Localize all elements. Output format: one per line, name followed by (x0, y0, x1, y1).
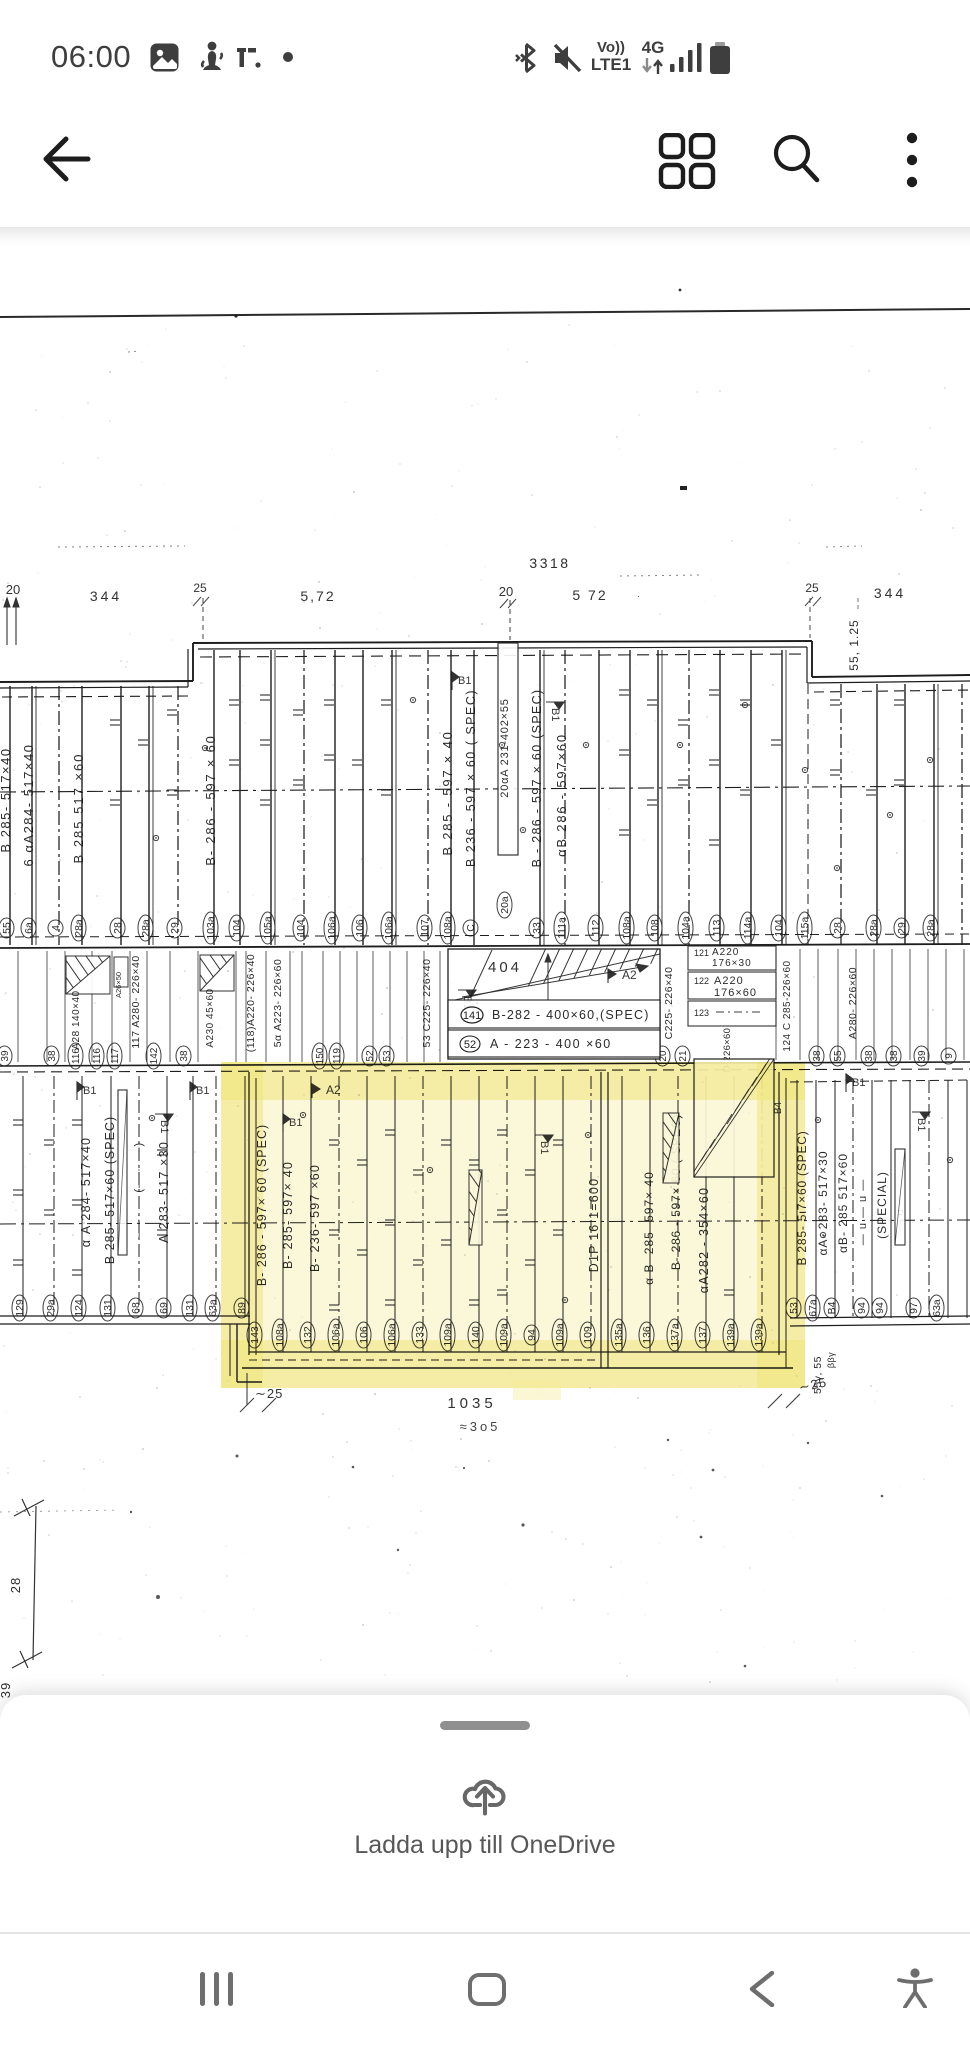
svg-text:55γ, 55: 55γ, 55 (812, 1356, 824, 1394)
svg-text:142: 142 (149, 1047, 160, 1064)
svg-text:5α A223- 226×60: 5α A223- 226×60 (272, 959, 284, 1048)
svg-text:104a: 104a (680, 916, 692, 940)
svg-text:344: 344 (90, 588, 122, 604)
svg-text:28a: 28a (73, 919, 85, 937)
svg-text:114a: 114a (742, 917, 754, 940)
svg-text:105a: 105a (262, 916, 274, 940)
svg-text:28: 28 (832, 922, 844, 934)
svg-text:39: 39 (917, 1050, 928, 1062)
svg-text:— u — u —: — u — u — (857, 1179, 869, 1245)
svg-text:38: 38 (864, 1050, 875, 1062)
svg-text:69: 69 (158, 1302, 170, 1314)
svg-text:3318: 3318 (529, 555, 570, 571)
svg-text:20: 20 (6, 582, 20, 597)
svg-text:.: . (637, 589, 640, 600)
svg-text:116: 116 (71, 1048, 82, 1064)
svg-text:52: 52 (365, 1050, 376, 1062)
svg-text:63a: 63a (207, 1299, 219, 1317)
svg-text:344: 344 (874, 585, 906, 601)
svg-text:αA- 283- 517×30: αA- 283- 517×30 (816, 1151, 830, 1256)
svg-text:A220: A220 (714, 975, 744, 987)
svg-text:29: 29 (169, 922, 181, 934)
svg-text:29a: 29a (45, 1299, 57, 1317)
svg-text:B 236 - 597 × 60 ( SPEC): B 236 - 597 × 60 ( SPEC) (464, 689, 478, 867)
svg-text:B1: B1 (915, 1118, 927, 1131)
svg-text:113: 113 (711, 919, 723, 936)
svg-text:C225- 226×40: C225- 226×40 (663, 967, 675, 1040)
svg-text:108a: 108a (442, 916, 454, 940)
svg-text:107: 107 (419, 919, 431, 937)
svg-text:111a: 111a (556, 917, 568, 939)
svg-text:53: 53 (382, 1050, 393, 1062)
svg-text:38: 38 (889, 1050, 900, 1062)
svg-text:176×60: 176×60 (714, 987, 757, 999)
svg-text:≈3ο5: ≈3ο5 (460, 1419, 501, 1434)
svg-text:176×30: 176×30 (712, 958, 752, 969)
svg-text:A2: A2 (622, 968, 637, 982)
svg-text:104: 104 (295, 919, 307, 937)
svg-text:67a: 67a (807, 1299, 819, 1317)
svg-text:122: 122 (694, 976, 709, 986)
svg-text:124 C 285-226×60: 124 C 285-226×60 (782, 960, 793, 1051)
svg-text:55: 55 (1, 922, 13, 934)
svg-text:104: 104 (773, 919, 785, 937)
svg-text:B-282 - 400×60,(SPEC): B-282 - 400×60,(SPEC) (492, 1008, 650, 1022)
svg-text:104: 104 (231, 919, 243, 937)
svg-text:63a: 63a (931, 1299, 943, 1317)
svg-text:A280- 226×60: A280- 226×60 (847, 967, 859, 1039)
svg-text:55: 55 (833, 1050, 844, 1062)
svg-text:B4: B4 (826, 1301, 838, 1314)
svg-text:29: 29 (896, 922, 908, 934)
svg-text:A 283- 517 ×30: A 283- 517 ×30 (157, 1141, 171, 1243)
svg-text:129: 129 (14, 1299, 26, 1317)
svg-text:55, 1.25: 55, 1.25 (847, 619, 861, 670)
svg-text:39: 39 (0, 1682, 13, 1698)
svg-text:α A 284- 517×40: α A 284- 517×40 (79, 1137, 93, 1247)
svg-text:106: 106 (354, 919, 366, 937)
svg-text:28a: 28a (140, 919, 152, 937)
svg-text:20αA 231-402×55: 20αA 231-402×55 (499, 698, 511, 797)
svg-text:28: 28 (8, 1577, 23, 1593)
svg-text:28: 28 (112, 922, 124, 934)
svg-text:20: 20 (499, 584, 513, 599)
svg-text:A230 45×60: A230 45×60 (205, 988, 216, 1047)
svg-text:5 72: 5 72 (572, 587, 607, 603)
svg-text:∼25: ∼25 (255, 1386, 283, 1401)
svg-text:21: 21 (678, 1050, 689, 1062)
svg-text:A220: A220 (712, 947, 739, 958)
svg-text:141: 141 (463, 1010, 481, 1022)
svg-text:B1: B1 (549, 708, 561, 721)
svg-text:52: 52 (464, 1039, 476, 1051)
svg-text:97: 97 (908, 1302, 920, 1314)
svg-text:B 285 - 597 × 40: B 285 - 597 × 40 (440, 730, 455, 855)
svg-text:25: 25 (193, 581, 207, 595)
svg-text:117 A280- 226×40: 117 A280- 226×40 (130, 955, 142, 1048)
svg-text:C: C (465, 924, 477, 932)
svg-text:103a: 103a (205, 916, 217, 940)
svg-text:B - 286 - 597 × 60 (SPEC): B - 286 - 597 × 60 (SPEC) (530, 689, 544, 868)
svg-text:150: 150 (315, 1047, 326, 1064)
svg-text:A26×50: A26×50 (114, 972, 123, 998)
svg-text:94: 94 (874, 1302, 886, 1314)
svg-text:B 285- 517×40: B 285- 517×40 (0, 747, 13, 852)
svg-text:38: 38 (812, 1050, 823, 1062)
svg-text:25: 25 (805, 581, 819, 595)
svg-text:115a: 115a (799, 917, 811, 940)
svg-text:B 285 517 ×60: B 285 517 ×60 (71, 753, 86, 864)
svg-text:4: 4 (50, 925, 62, 931)
svg-text:— ·· — (— ·· —): — ·· — (— ·· —) (133, 1142, 145, 1238)
svg-text:108: 108 (649, 919, 661, 937)
svg-text:28a: 28a (868, 919, 880, 937)
svg-text:(SPECIAL): (SPECIAL) (875, 1171, 889, 1239)
svg-text:68: 68 (130, 1302, 142, 1314)
svg-text:106a: 106a (383, 916, 395, 940)
svg-text:112: 112 (590, 919, 602, 936)
svg-text:9: 9 (944, 1053, 955, 1059)
svg-text:119: 119 (332, 1048, 343, 1064)
svg-text:1035: 1035 (447, 1395, 496, 1412)
svg-text:116: 116 (92, 1048, 103, 1064)
svg-text:(118)A220- 226×40: (118)A220- 226×40 (245, 954, 257, 1053)
svg-text:121: 121 (694, 948, 709, 958)
svg-text:108a: 108a (621, 916, 633, 940)
svg-text:404: 404 (488, 959, 522, 976)
svg-text:B1: B1 (458, 675, 471, 687)
svg-text:B1: B1 (83, 1085, 96, 1097)
svg-text:5,72: 5,72 (300, 588, 335, 604)
svg-text:A - 223 - 400 ×60: A - 223 - 400 ×60 (490, 1037, 612, 1051)
svg-text:B1: B1 (158, 1120, 170, 1133)
svg-text:123: 123 (694, 1008, 709, 1018)
svg-text:38: 38 (179, 1050, 190, 1062)
svg-text:117: 117 (110, 1048, 121, 1064)
svg-text:B1: B1 (852, 1077, 865, 1089)
svg-text:ββγ: ββγ (826, 1352, 836, 1368)
svg-text:A28 140×40: A28 140×40 (71, 990, 82, 1049)
svg-text:28a: 28a (925, 919, 937, 937)
svg-text:6 αA284- 517×40: 6 αA284- 517×40 (21, 744, 36, 867)
svg-text:94: 94 (856, 1302, 868, 1314)
svg-text:αB 286 - 597×60: αB 286 - 597×60 (554, 733, 569, 857)
svg-text:6a: 6a (23, 922, 35, 934)
svg-text:131: 131 (102, 1299, 114, 1317)
svg-text:20a: 20a (499, 896, 511, 914)
svg-text:124: 124 (73, 1299, 85, 1317)
svg-text:131: 131 (184, 1299, 196, 1317)
svg-text:B 285- 517×60 (SPEC): B 285- 517×60 (SPEC) (103, 1116, 117, 1264)
svg-text:53 C225- 226×40: 53 C225- 226×40 (421, 959, 433, 1048)
svg-text:38: 38 (47, 1050, 58, 1062)
svg-text:106a: 106a (326, 916, 338, 940)
svg-text:B- 286 - 597 × 60: B- 286 - 597 × 60 (203, 734, 218, 865)
svg-text:B1: B1 (196, 1085, 209, 1097)
svg-text:αB- 285 517×60: αB- 285 517×60 (836, 1153, 850, 1253)
svg-text:39: 39 (0, 1050, 11, 1062)
